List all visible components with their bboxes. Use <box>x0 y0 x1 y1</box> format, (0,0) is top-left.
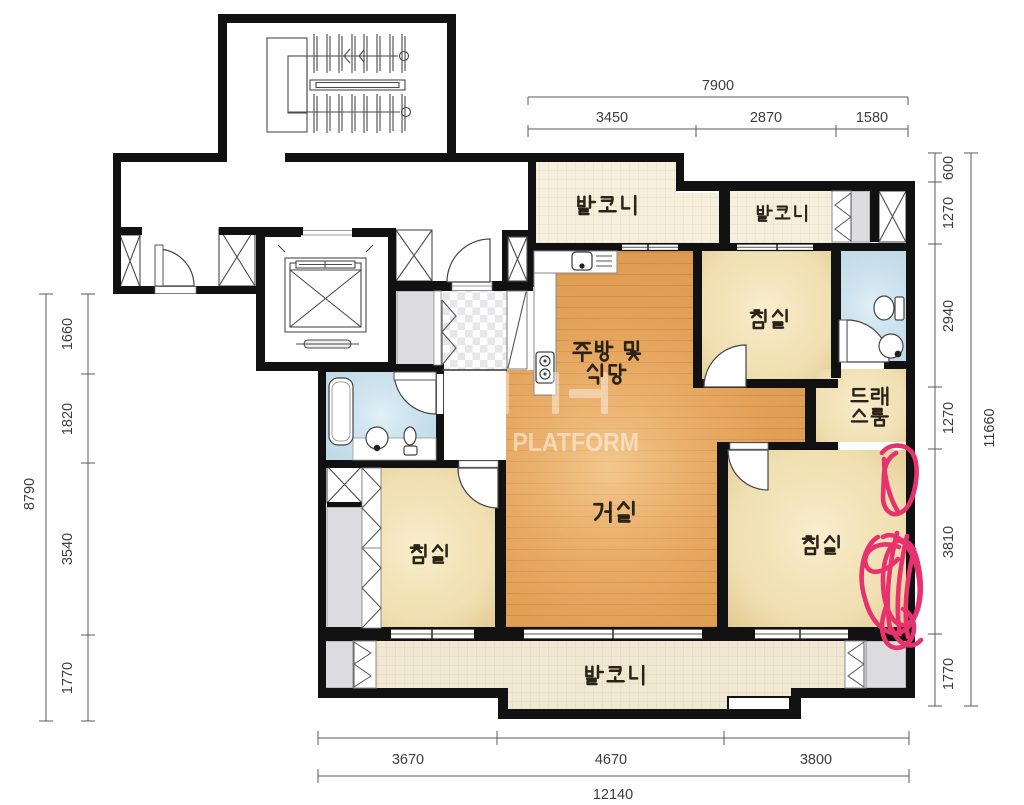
svg-text:7900: 7900 <box>702 78 734 94</box>
svg-text:3450: 3450 <box>596 110 628 126</box>
svg-text:3810: 3810 <box>941 526 957 558</box>
svg-text:3540: 3540 <box>60 533 76 565</box>
svg-text:2940: 2940 <box>941 300 957 332</box>
svg-text:600: 600 <box>941 156 957 180</box>
svg-text:1820: 1820 <box>60 403 76 435</box>
svg-text:1770: 1770 <box>60 662 76 694</box>
svg-text:1270: 1270 <box>941 402 957 434</box>
svg-text:NESS PLATFORM: NESS PLATFORM <box>443 427 639 457</box>
svg-text:3800: 3800 <box>800 752 832 768</box>
svg-text:1270: 1270 <box>941 197 957 229</box>
svg-text:1660: 1660 <box>60 318 76 350</box>
svg-text:2870: 2870 <box>750 110 782 126</box>
svg-text:8790: 8790 <box>22 478 38 510</box>
svg-text:1580: 1580 <box>856 110 888 126</box>
svg-text:1770: 1770 <box>941 658 957 690</box>
svg-text:4670: 4670 <box>595 752 627 768</box>
svg-text:12140: 12140 <box>593 787 633 803</box>
svg-text:3670: 3670 <box>392 752 424 768</box>
svg-text:11660: 11660 <box>982 408 998 447</box>
